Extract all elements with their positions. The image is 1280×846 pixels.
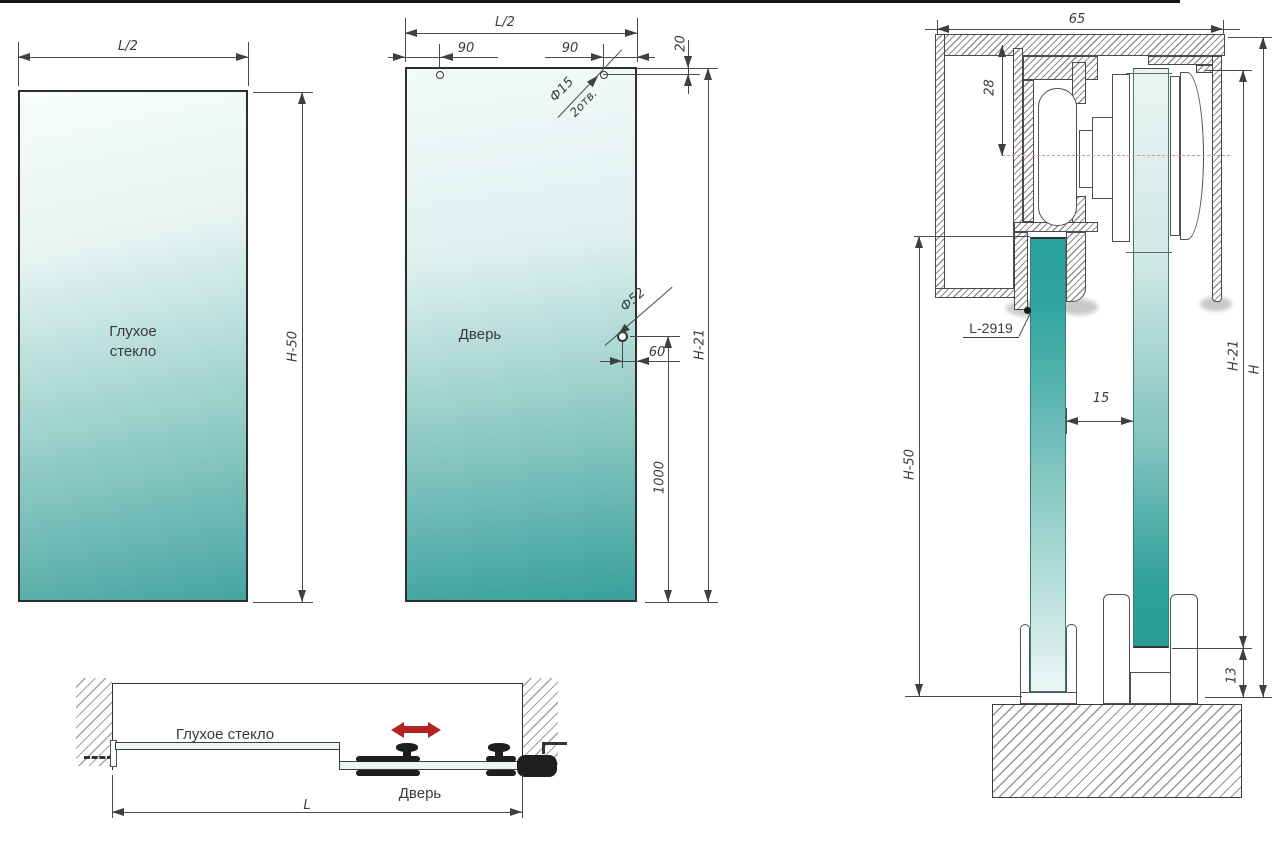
profile-code-label: L-2919 bbox=[963, 320, 1019, 338]
arrow bbox=[664, 590, 672, 602]
dim-text-65: 65 bbox=[1057, 12, 1097, 27]
dim-text-28: 28 bbox=[983, 66, 998, 110]
ext-line bbox=[248, 42, 249, 86]
arrow bbox=[591, 53, 603, 61]
clamp-edge-line bbox=[1126, 252, 1172, 253]
arrow bbox=[704, 68, 712, 80]
arrow bbox=[112, 808, 124, 816]
arrow bbox=[915, 236, 923, 248]
dim-text-fixed-width: L/2 bbox=[68, 39, 188, 54]
arrow bbox=[1239, 636, 1247, 648]
door-clamp-plate-right-inner bbox=[1170, 76, 1180, 236]
technical-drawing-canvas: Глухое стекло L/2 H-50 Дверь L/2 90 90 2… bbox=[0, 0, 1280, 846]
plan-wall-right bbox=[522, 678, 558, 766]
door-label: Дверь bbox=[435, 326, 525, 343]
dim-line-28 bbox=[1002, 45, 1003, 156]
dim-text-90-left: 90 bbox=[446, 41, 486, 56]
plan-wall-left bbox=[76, 678, 112, 766]
ext-line bbox=[630, 336, 680, 337]
dim-line-fixed-width bbox=[18, 57, 248, 58]
arrow bbox=[684, 74, 692, 86]
arrow bbox=[18, 53, 30, 61]
arrow bbox=[1239, 685, 1247, 697]
ext-line bbox=[914, 236, 1030, 237]
plan-door-label: Дверь bbox=[383, 785, 457, 802]
carriage2-bolt-stem bbox=[495, 751, 503, 761]
plan-fixed-glass bbox=[115, 742, 340, 750]
fixed-glass-label-line1: Глухое bbox=[58, 322, 208, 342]
wall-box-bottom-wall bbox=[935, 288, 1023, 298]
dim-line-65 bbox=[925, 29, 1240, 30]
arrow bbox=[664, 336, 672, 348]
dim-text-13: 13 bbox=[1225, 658, 1240, 694]
dim-line-door-height bbox=[708, 68, 709, 602]
arrow bbox=[298, 590, 306, 602]
glass-clamp-jaw-left bbox=[1014, 232, 1028, 310]
carriage2-bottom-plate bbox=[486, 770, 516, 776]
door-guide-right-block bbox=[1170, 594, 1198, 704]
dim-text-h: H bbox=[1248, 352, 1263, 388]
door-top-hole-left bbox=[436, 71, 444, 79]
glass-clamp-jaw-right bbox=[1066, 232, 1086, 302]
track-cover-strip bbox=[1212, 56, 1222, 302]
door-clamp-plate-left bbox=[1112, 74, 1130, 242]
arrow bbox=[637, 53, 649, 61]
arrow bbox=[393, 53, 405, 61]
floor-block bbox=[992, 704, 1242, 798]
roller-axis-centerline bbox=[1002, 155, 1230, 156]
roller-capsule bbox=[1038, 88, 1077, 226]
arrow bbox=[1239, 70, 1247, 82]
carriage1-bottom-plate bbox=[356, 770, 420, 776]
arrow bbox=[298, 92, 306, 104]
arrow bbox=[915, 684, 923, 696]
arrow bbox=[405, 29, 417, 37]
ext-line bbox=[18, 42, 19, 86]
arrow bbox=[998, 144, 1006, 156]
wall-face-dashes-left bbox=[84, 756, 113, 759]
arrow bbox=[625, 29, 637, 37]
dim-text-sec-h50: H-50 bbox=[903, 441, 918, 489]
section-fixed-glass bbox=[1030, 237, 1066, 692]
dim-line-door-width bbox=[405, 33, 637, 34]
arrow bbox=[510, 808, 522, 816]
arrow bbox=[1259, 685, 1267, 697]
slide-arrow-shaft bbox=[403, 726, 429, 733]
track-end-hook-v bbox=[542, 745, 545, 754]
wall-box-left-wall bbox=[935, 34, 945, 298]
dim-text-door-height: H-21 bbox=[693, 321, 708, 369]
dim-text-20: 20 bbox=[674, 26, 689, 62]
profile-code-dot bbox=[1024, 307, 1031, 314]
dim-text-l: L bbox=[295, 798, 319, 813]
roller-chamber-left-wall bbox=[1023, 80, 1034, 222]
dim-text-90-right: 90 bbox=[550, 41, 590, 56]
dim-text-fixed-height: H-50 bbox=[286, 317, 301, 377]
carriage1-bolt-stem bbox=[403, 751, 411, 761]
fixed-glass-label-line2: стекло bbox=[58, 342, 208, 362]
dim-line-fixed-height bbox=[302, 92, 303, 602]
fixed-glass-label: Глухое стекло bbox=[58, 322, 208, 362]
track-top-plate bbox=[935, 34, 1225, 56]
plan-step-line bbox=[339, 742, 340, 762]
door-end-stop bbox=[517, 755, 557, 777]
dim-text-door-width: L/2 bbox=[445, 15, 565, 30]
slide-arrow-right-head bbox=[428, 722, 441, 738]
dim-line-h bbox=[1263, 37, 1264, 697]
arrow bbox=[937, 25, 949, 33]
roller-axle bbox=[1079, 130, 1093, 188]
track-end-hook-h bbox=[542, 742, 567, 745]
door-clamp-plate-right-lens bbox=[1180, 72, 1204, 240]
dim-line-sec-h50 bbox=[919, 236, 920, 696]
arrow bbox=[1211, 25, 1223, 33]
arrow bbox=[236, 53, 248, 61]
arrow bbox=[998, 45, 1006, 57]
track-snap-tab bbox=[1148, 56, 1218, 65]
arrow bbox=[1239, 648, 1247, 660]
dim-text-1000: 1000 bbox=[653, 458, 668, 498]
arrow bbox=[610, 357, 622, 365]
dim-line-1000 bbox=[668, 336, 669, 602]
dim-text-sec-h21: H-21 bbox=[1227, 332, 1242, 380]
arrow bbox=[1121, 417, 1133, 425]
dim-text-15: 15 bbox=[1086, 391, 1116, 406]
plan-fixed-glass-label: Глухое стекло bbox=[145, 726, 305, 743]
floor-channel-base bbox=[1020, 692, 1077, 704]
clamp-edge-line bbox=[1126, 73, 1172, 74]
plan-door-glass bbox=[339, 761, 522, 770]
top-border bbox=[0, 0, 1180, 3]
arrow bbox=[1066, 417, 1078, 425]
plan-opening-top bbox=[112, 683, 522, 685]
arrow bbox=[1259, 37, 1267, 49]
arrow bbox=[704, 590, 712, 602]
slide-arrow-left-head bbox=[391, 722, 404, 738]
track-inner-top-block bbox=[1023, 56, 1098, 80]
door-guide-left-block bbox=[1103, 594, 1130, 704]
dim-line-sec-h21 bbox=[1243, 70, 1244, 648]
